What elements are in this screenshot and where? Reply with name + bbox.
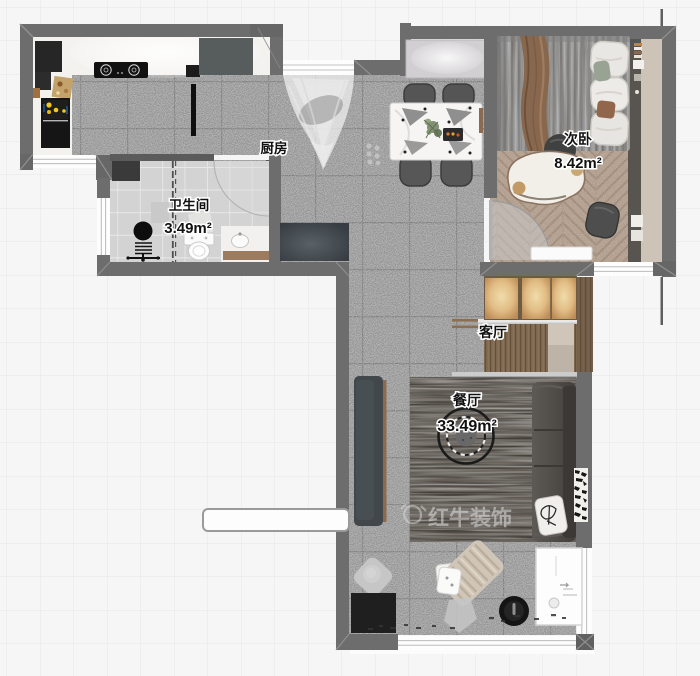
svg-text:3.49m²: 3.49m² [164,220,212,237]
svg-text:次卧: 次卧 [564,131,592,147]
svg-text:厨房: 厨房 [261,140,288,156]
svg-text:餐厅: 餐厅 [452,392,481,408]
svg-text:红牛装饰: 红牛装饰 [428,506,512,530]
svg-text:8.42m²: 8.42m² [554,155,602,172]
svg-text:卫生间: 卫生间 [169,197,210,213]
svg-text:客厅: 客厅 [478,324,507,340]
svg-text:33.49m²: 33.49m² [437,418,497,435]
